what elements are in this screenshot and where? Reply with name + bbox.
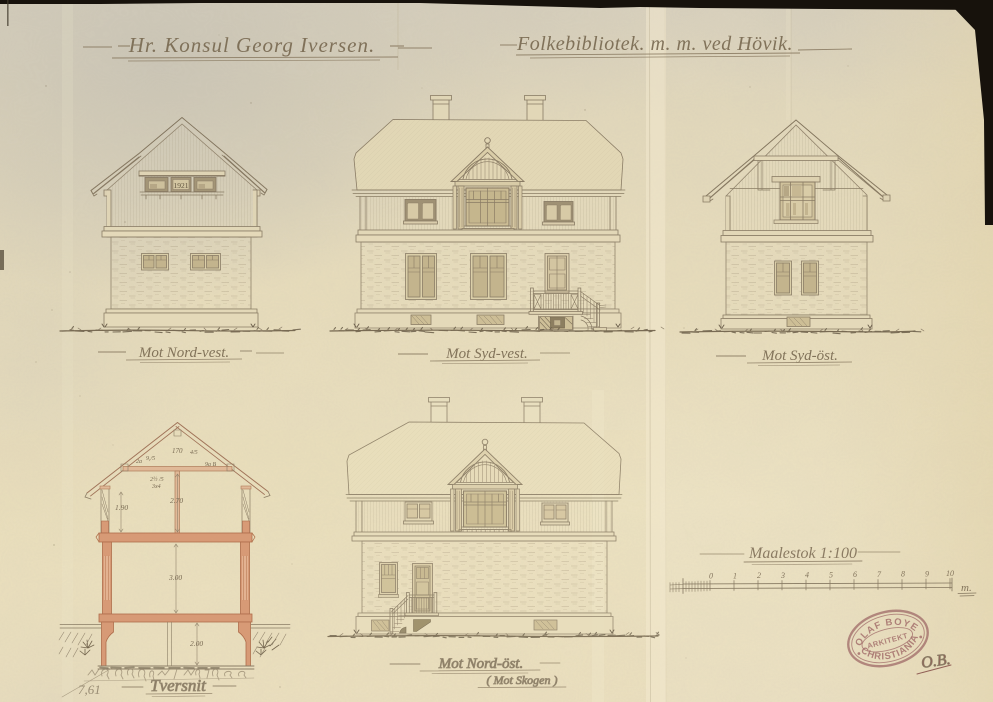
svg-text:7,61: 7,61 <box>78 682 101 697</box>
svg-text:10: 10 <box>946 569 954 578</box>
svg-text:2½ /5: 2½ /5 <box>150 476 164 483</box>
svg-text:3: 3 <box>780 571 785 580</box>
svg-text:Maalestok 1:100: Maalestok 1:100 <box>748 545 857 562</box>
svg-text:9a B: 9a B <box>205 462 217 468</box>
svg-text:170: 170 <box>172 447 183 455</box>
svg-text:3x4: 3x4 <box>151 483 161 490</box>
svg-text:Mot Nord-öst.: Mot Nord-öst. <box>438 656 523 672</box>
svg-text:1.90: 1.90 <box>115 503 128 512</box>
svg-text:1: 1 <box>733 572 737 581</box>
svg-text:9,/5: 9,/5 <box>146 456 155 462</box>
svg-text:2: 2 <box>757 571 761 580</box>
svg-text:Folkebibliotek. m. m. ved Hövi: Folkebibliotek. m. m. ved Hövik. <box>516 33 793 55</box>
svg-text:Tversnit: Tversnit <box>150 676 207 695</box>
svg-text:Mot Syd-öst.: Mot Syd-öst. <box>761 348 838 364</box>
svg-text:( Mot Skogen ): ( Mot Skogen ) <box>487 673 558 687</box>
svg-text:4: 4 <box>805 571 809 580</box>
svg-text:2.00: 2.00 <box>190 639 203 648</box>
svg-text:Mot Nord-vest.: Mot Nord-vest. <box>138 345 229 361</box>
svg-text:3.00: 3.00 <box>168 573 182 582</box>
svg-text:8: 8 <box>901 570 905 579</box>
svg-text:4/5: 4/5 <box>190 449 198 456</box>
svg-text:5: 5 <box>829 571 833 580</box>
svg-text:Hr. Konsul Georg Iversen.: Hr. Konsul Georg Iversen. <box>128 33 375 57</box>
svg-text:6: 6 <box>853 570 857 579</box>
svg-text:2a: 2a <box>136 459 142 465</box>
svg-text:9: 9 <box>925 570 929 579</box>
svg-text:m.: m. <box>961 582 972 594</box>
svg-text:1921: 1921 <box>174 181 189 190</box>
svg-text:Mot Syd-vest.: Mot Syd-vest. <box>445 346 528 362</box>
svg-text:0: 0 <box>709 572 713 581</box>
svg-text:2.70: 2.70 <box>170 496 183 505</box>
